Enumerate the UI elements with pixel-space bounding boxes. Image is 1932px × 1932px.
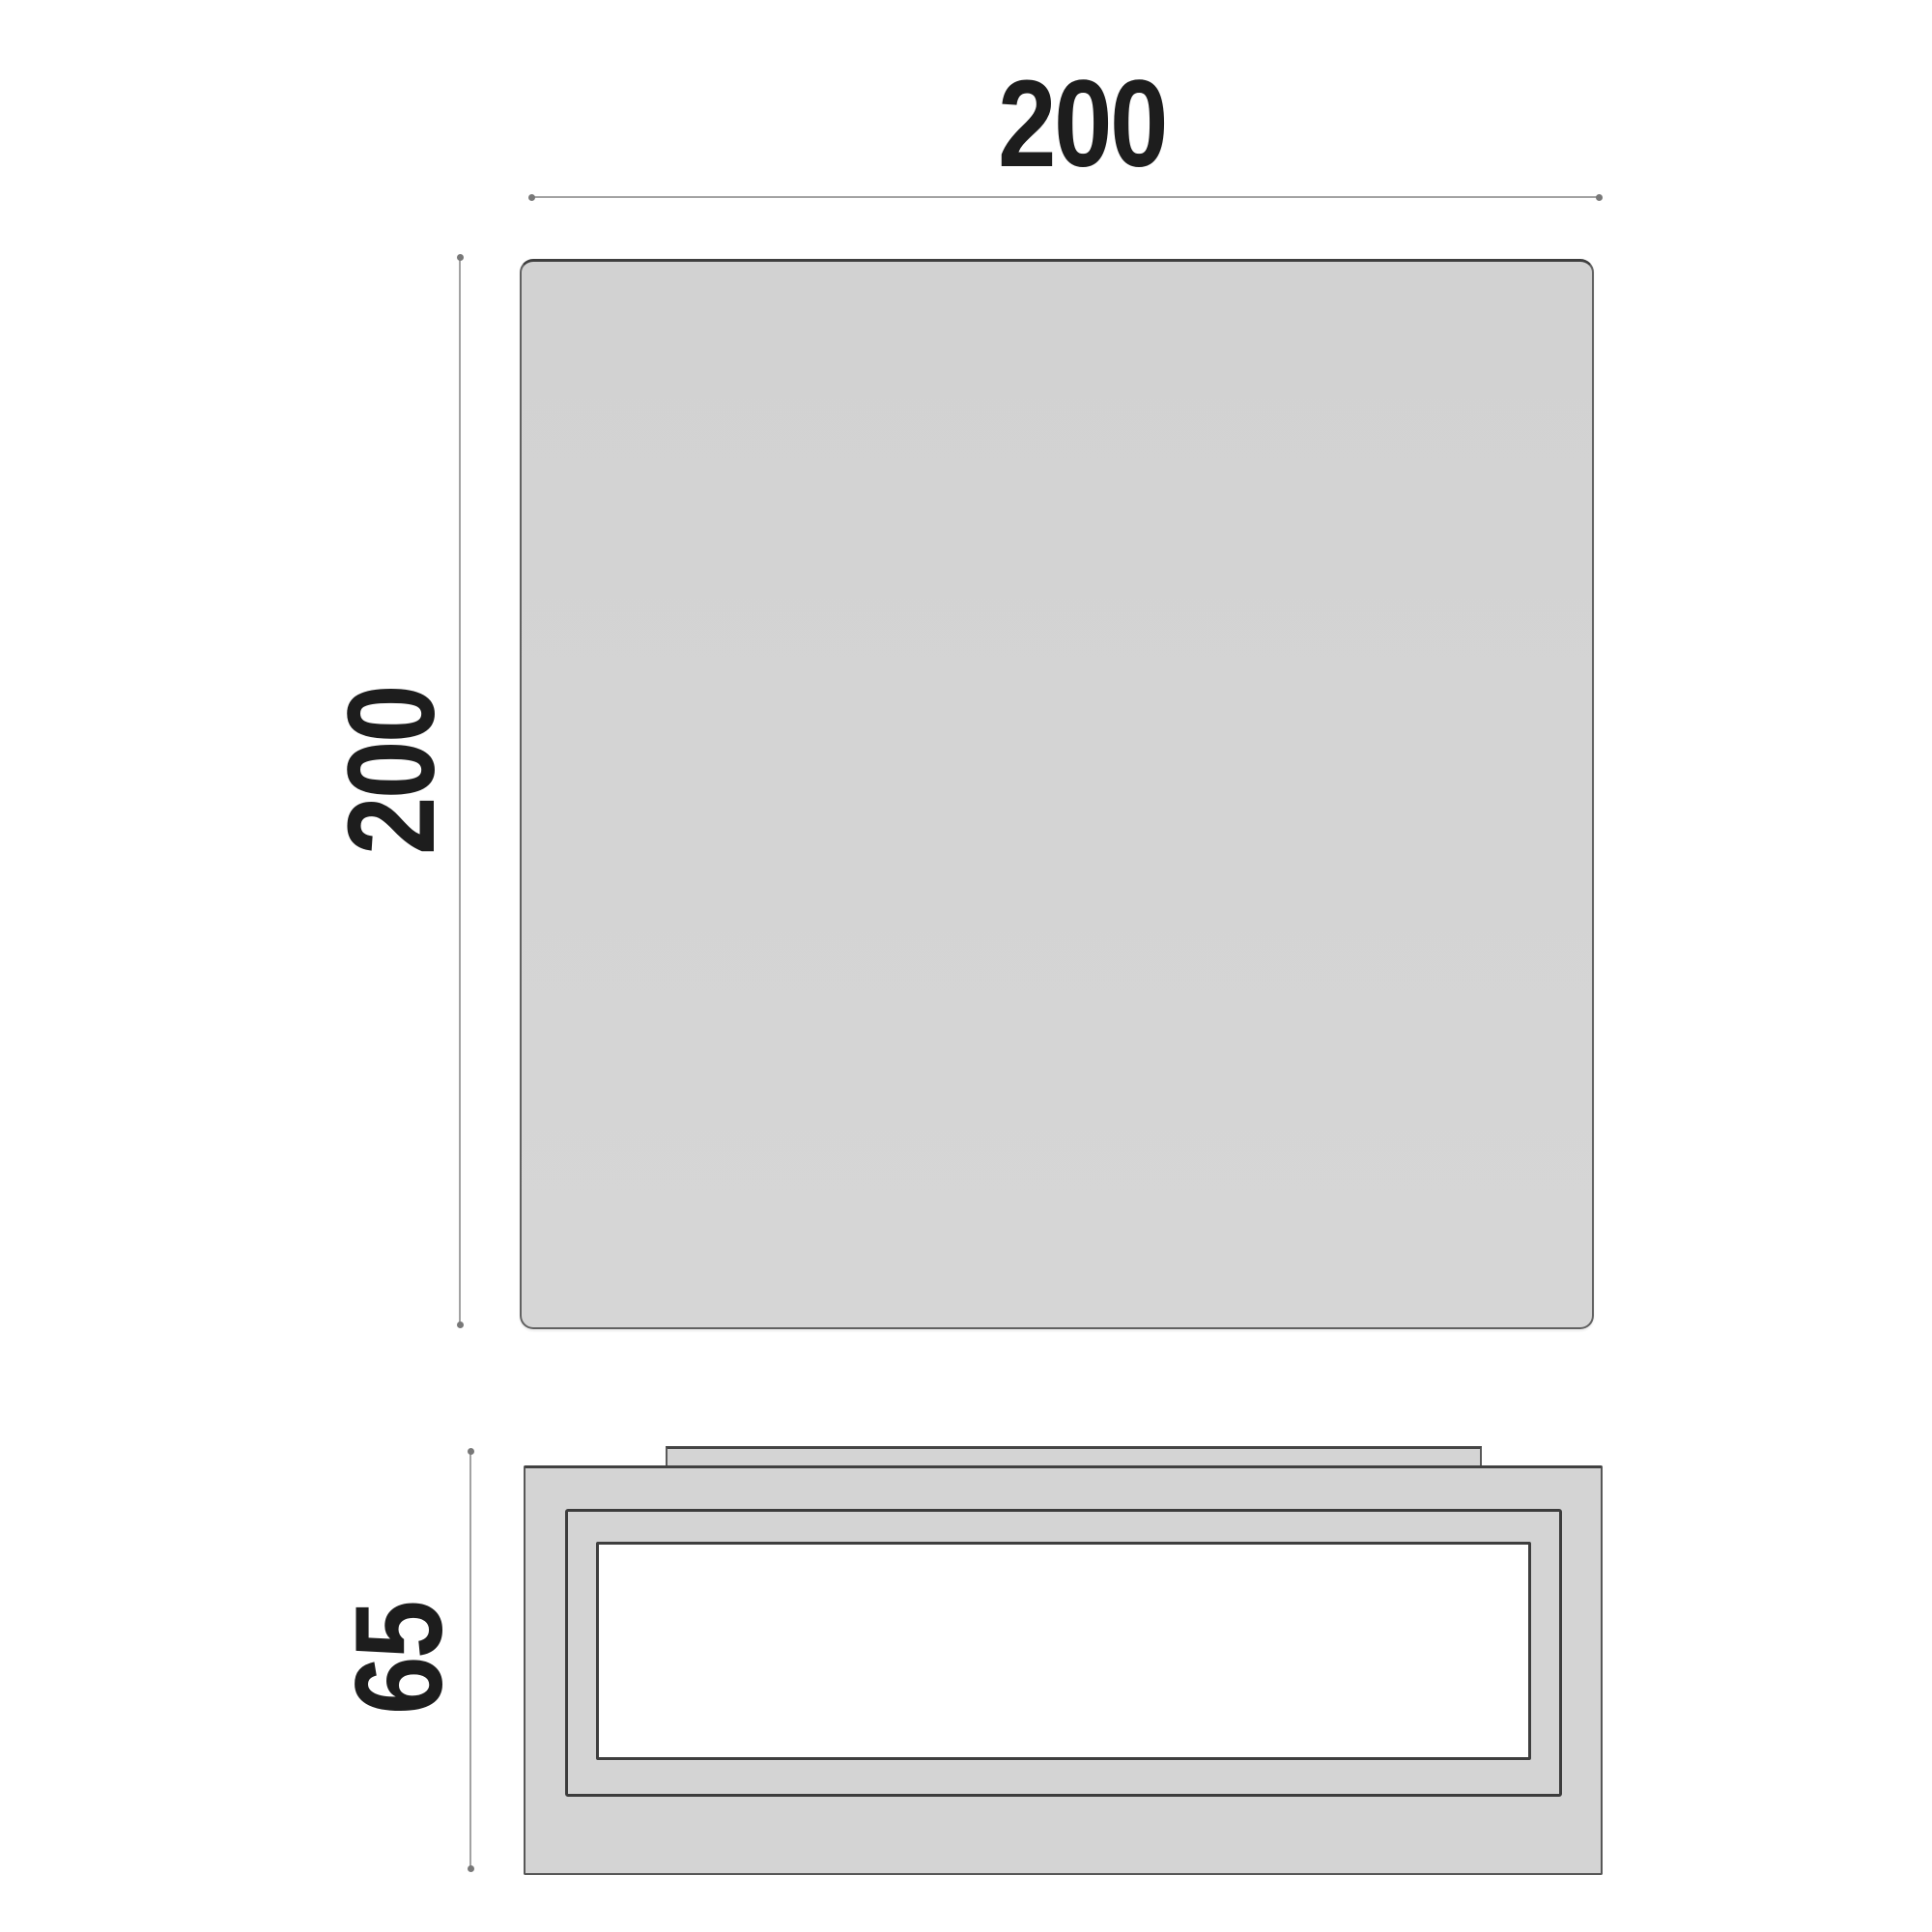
height-dimension-label: 200 [330, 687, 454, 855]
dimension-tick [1596, 194, 1603, 201]
depth-dimension-label: 65 [338, 1603, 462, 1715]
dimension-tick [457, 254, 464, 261]
side-view-diffuser [596, 1542, 1531, 1760]
dimension-tick [457, 1321, 464, 1328]
dimension-drawing: 200 200 65 [0, 0, 1932, 1932]
width-dimension-label: 200 [998, 63, 1166, 186]
width-dimension-line [531, 196, 1600, 198]
depth-dimension-line [469, 1451, 471, 1869]
dimension-tick [468, 1865, 474, 1872]
dimension-tick [468, 1448, 474, 1455]
top-view-panel [520, 259, 1594, 1329]
dimension-tick [528, 194, 535, 201]
